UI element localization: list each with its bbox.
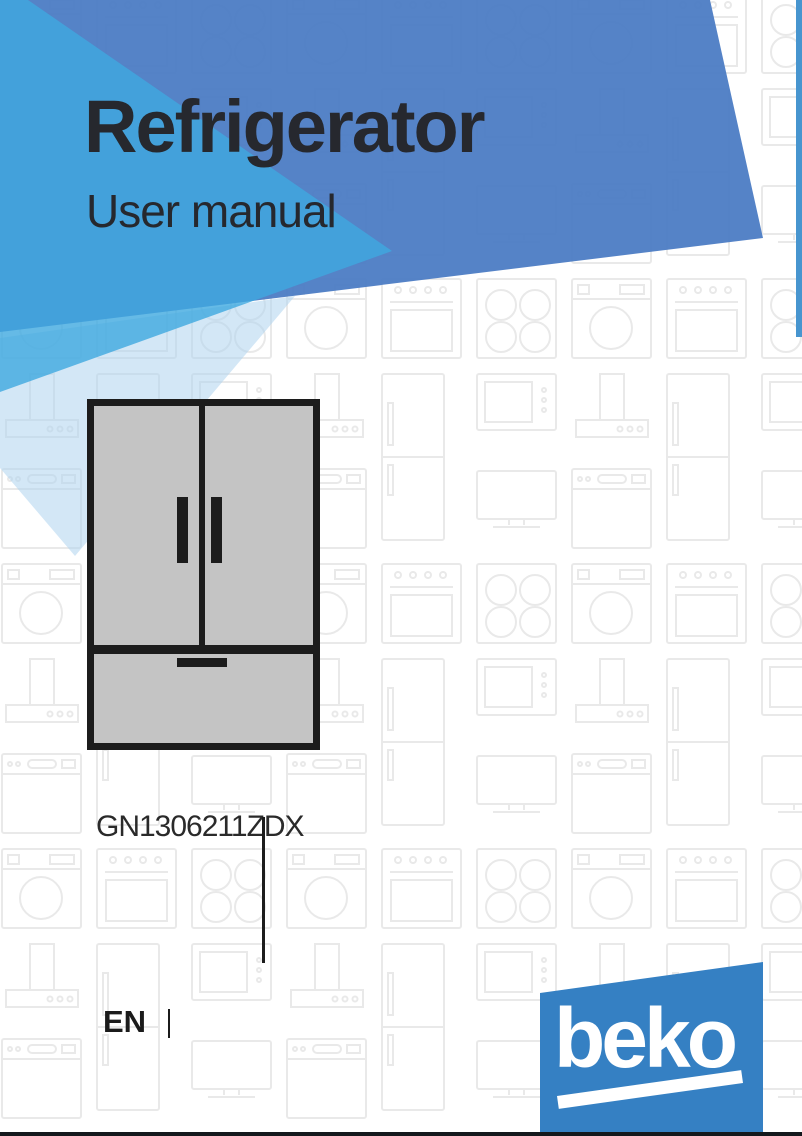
fridge-drawer-handle [177, 658, 227, 667]
language-divider-bar [168, 1009, 170, 1038]
fridge-bottom-drawer [94, 654, 313, 743]
page-title: Refrigerator [84, 90, 484, 164]
fridge-left-door-handle [177, 497, 188, 563]
model-pointer-line [262, 817, 265, 963]
page-subtitle: User manual [86, 188, 336, 234]
page-bottom-strip [0, 1132, 802, 1136]
model-number: GN1306211ZDX [96, 812, 304, 842]
beko-logo-wordmark: beko [554, 996, 734, 1080]
right-edge-accent-stripe [796, 0, 802, 337]
manual-cover-page: Refrigerator User manual GN1306211ZDX EN… [0, 0, 802, 1136]
language-code: EN [103, 1006, 146, 1037]
fridge-right-door-handle [211, 497, 222, 563]
refrigerator-illustration [87, 399, 320, 750]
